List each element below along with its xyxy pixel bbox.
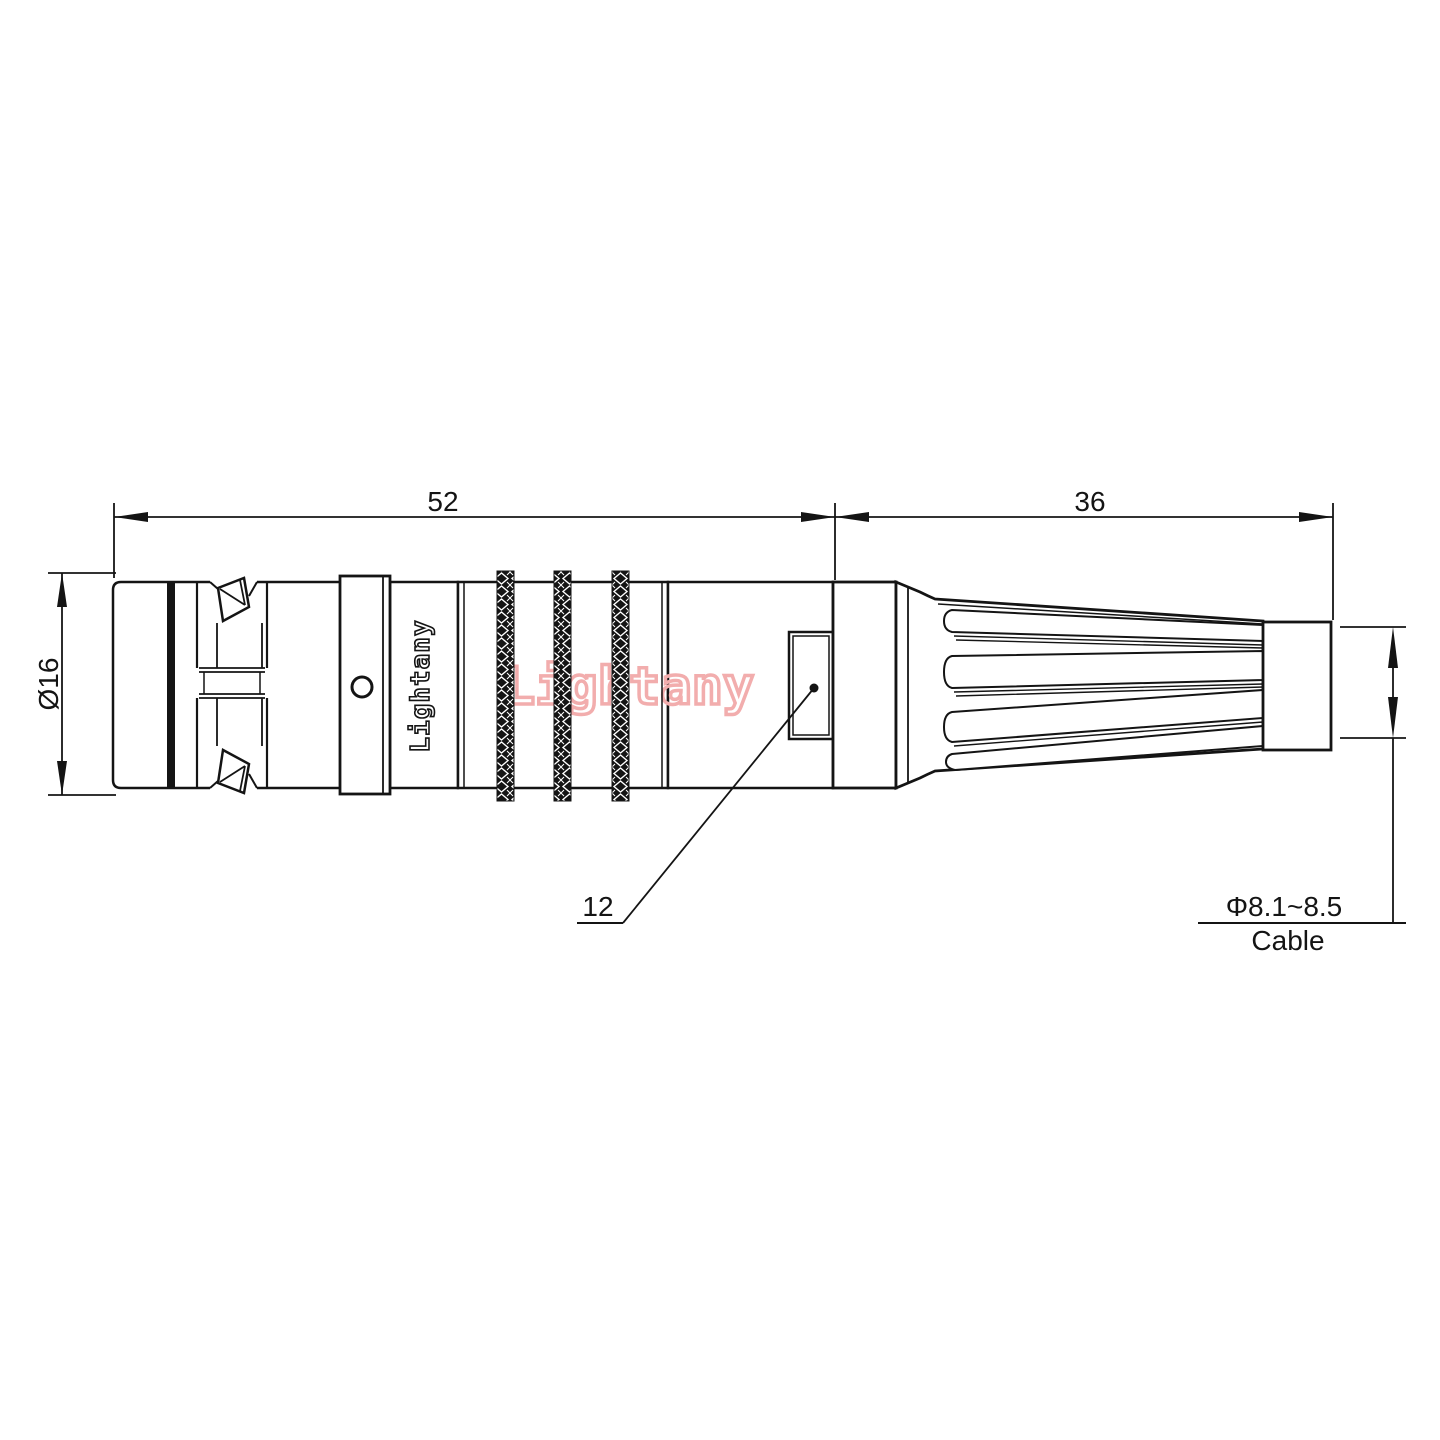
knurl-strip-3 — [612, 571, 629, 801]
dimension-front-length: 52 — [114, 486, 835, 580]
connector-technical-drawing: Lightany Lightany — [0, 0, 1440, 1440]
strain-relief-boot — [833, 582, 1331, 788]
cable-caption-label: Cable — [1251, 925, 1324, 956]
dim-36-label: 36 — [1074, 486, 1105, 517]
front-groove-band — [167, 583, 175, 787]
dim-12-label: 12 — [582, 891, 613, 922]
cable-ferrule — [1263, 622, 1331, 750]
cable-diameter-label: Φ8.1~8.5 — [1226, 891, 1343, 922]
grip-ring — [340, 576, 390, 794]
dim-diameter-label: Ø16 — [33, 658, 64, 711]
knurl-strip-1 — [497, 571, 514, 801]
drawing-page: Lightany Lightany — [0, 0, 1440, 1440]
dim-52-label: 52 — [427, 486, 458, 517]
dimension-outer-diameter: Ø16 — [33, 573, 116, 795]
knurl-strip-2 — [554, 571, 571, 801]
ring-hole — [352, 677, 372, 697]
body-marking-text: Lightany — [406, 619, 436, 752]
